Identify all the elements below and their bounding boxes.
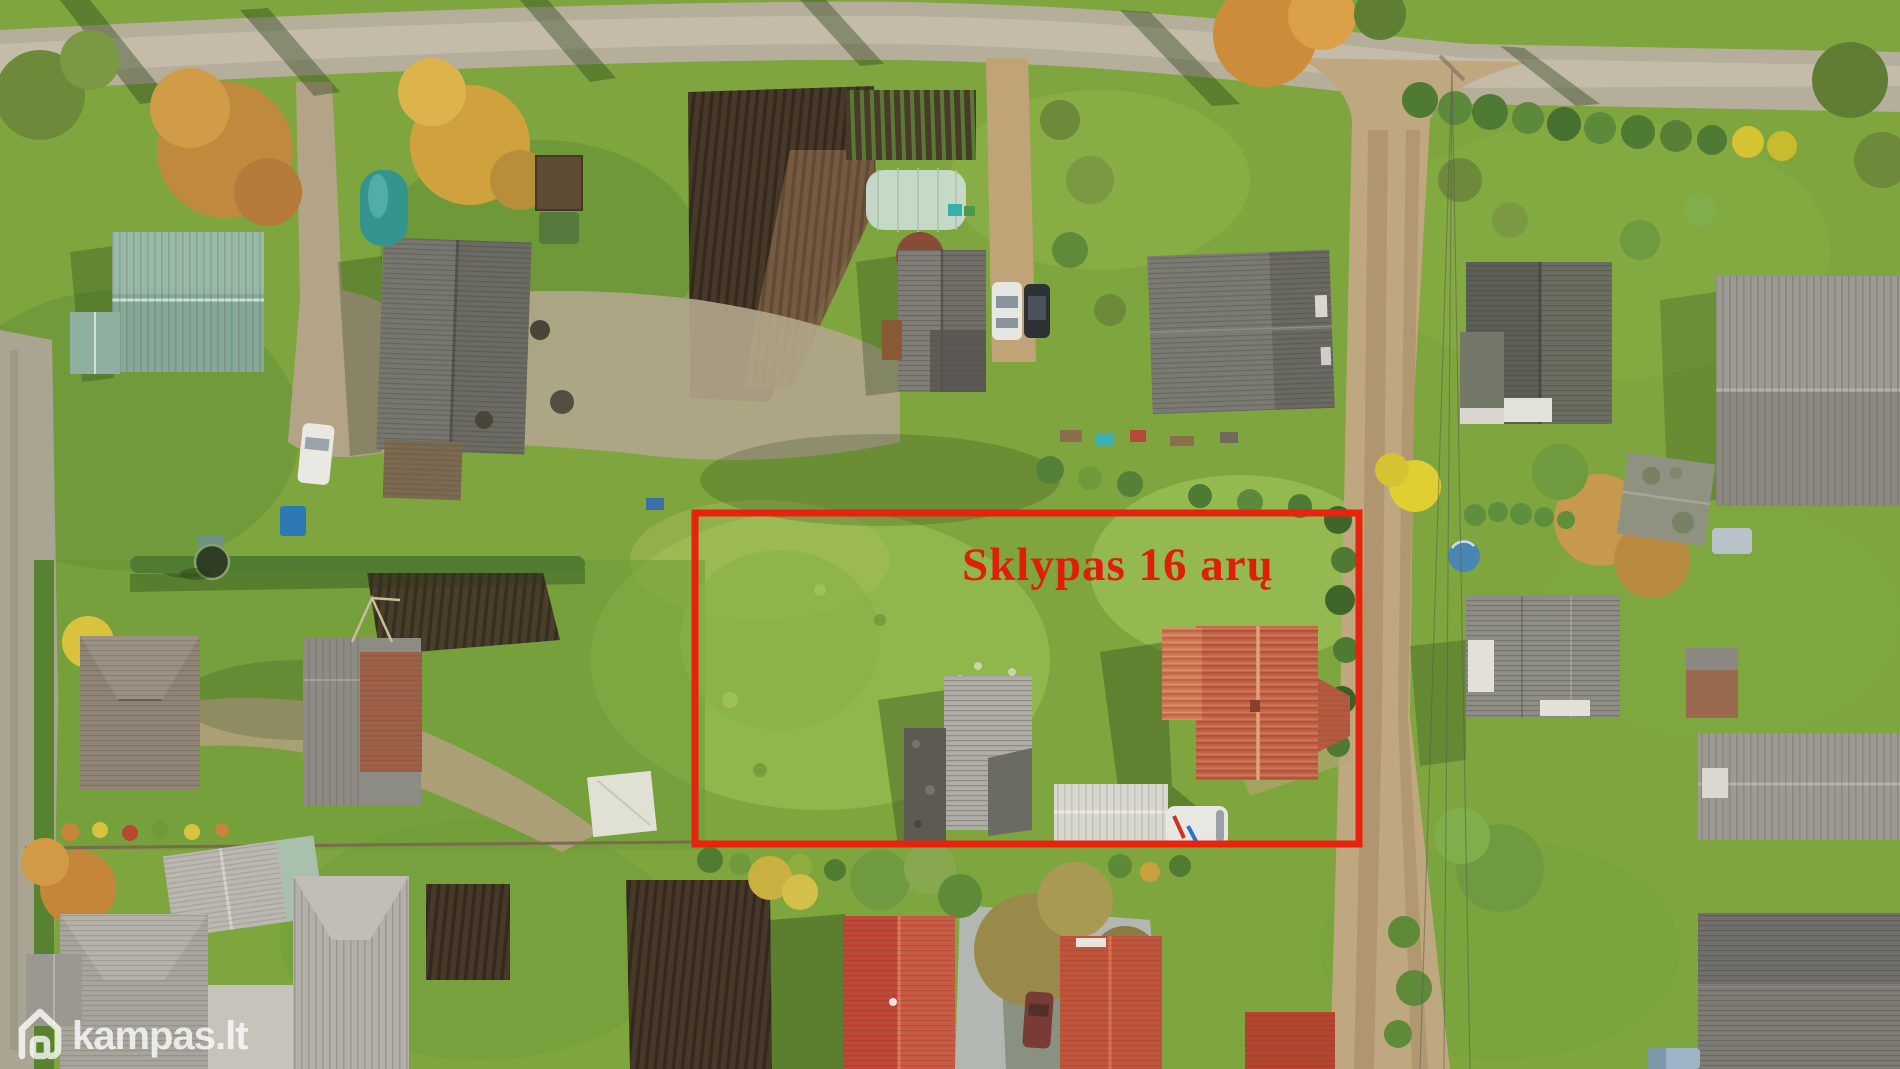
pickup-blue <box>1648 1048 1700 1069</box>
beehive-cyan <box>948 204 962 216</box>
house-red-k <box>1060 936 1162 1069</box>
house-grey-c <box>1147 250 1334 414</box>
house-grey-rust <box>303 638 422 806</box>
garden-bed-rows <box>846 90 976 160</box>
plot-label: Sklypas 16 arų <box>962 539 1274 591</box>
trailer-small <box>1712 528 1752 554</box>
car-white-top <box>992 282 1022 340</box>
aerial-photo: Sklypas 16 arų kampas.lt <box>0 0 1900 1069</box>
sandbox-blue <box>280 506 306 536</box>
house-grey-e-right-edge <box>1716 276 1900 506</box>
house-red-l-corner <box>1245 1012 1335 1069</box>
house-grey-right-mid <box>1698 733 1900 840</box>
car-white-left <box>297 422 335 485</box>
container-rust <box>882 320 902 360</box>
watermark-text: kampas.lt <box>72 1014 248 1058</box>
camper-rv <box>1166 806 1228 846</box>
garden-soil-bottom <box>626 880 772 1069</box>
house-brown-hip <box>80 636 200 790</box>
garden-soil-bottom-left <box>426 884 510 980</box>
trailer-truck-green <box>536 156 582 244</box>
barn-stone-wing <box>904 728 946 846</box>
aerial-photo-listing: Sklypas 16 arų kampas.lt <box>0 0 1900 1069</box>
house-hip-large-bottom <box>293 876 409 1069</box>
beehive-green <box>964 206 975 216</box>
shed-white <box>1054 784 1168 844</box>
car-maroon <box>1022 991 1054 1049</box>
water-tank-teal <box>360 170 408 246</box>
pool-round <box>1448 540 1480 572</box>
car-black-top <box>1024 284 1050 338</box>
house-grey-b <box>898 250 986 392</box>
house-white-cottage <box>1466 596 1620 718</box>
greenhouse <box>866 168 975 232</box>
chimney <box>1250 700 1260 712</box>
house-slate-right <box>1460 262 1612 424</box>
house-red-gable <box>843 916 955 1069</box>
tarp-white <box>587 771 657 837</box>
shed-mossy <box>1617 452 1716 545</box>
